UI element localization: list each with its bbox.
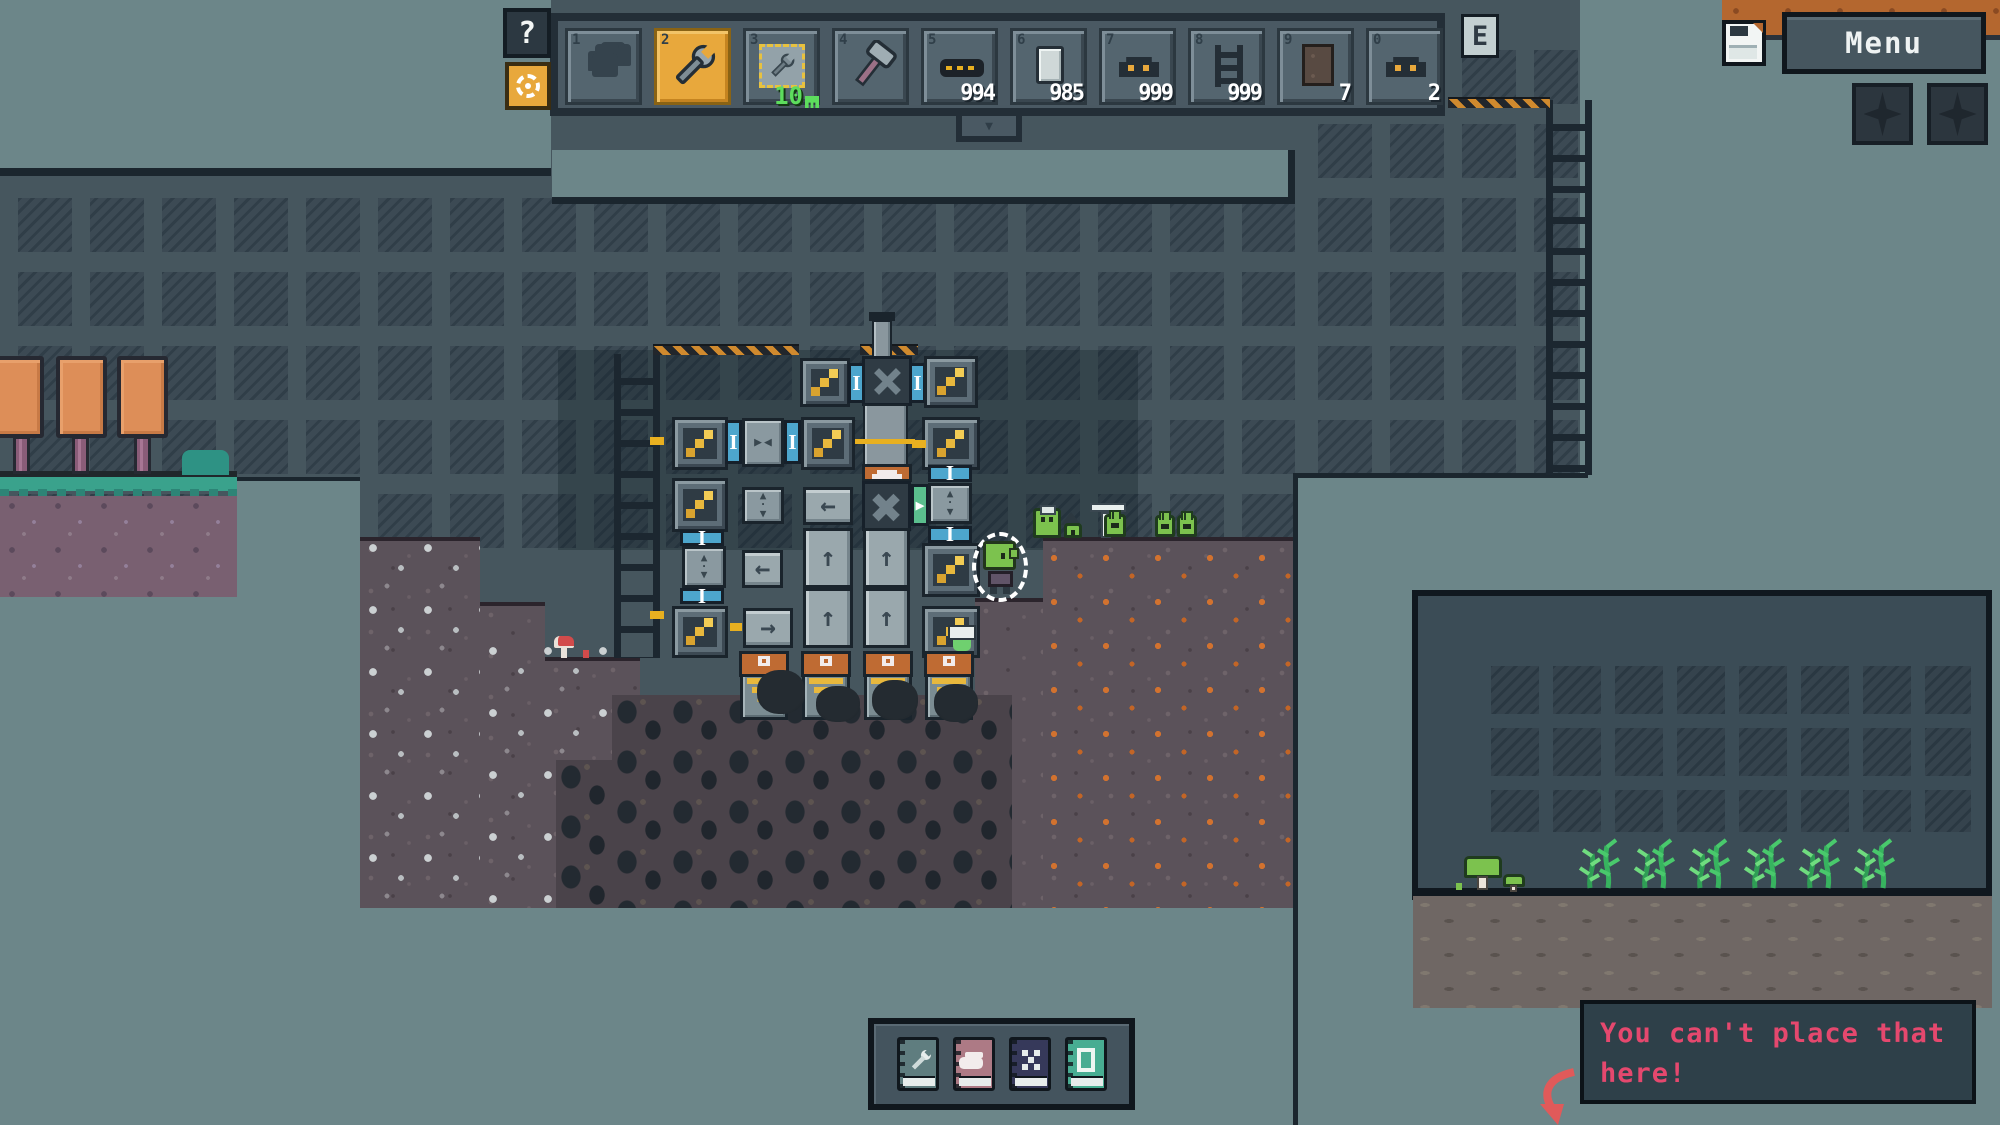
toast-message: You can't place that here!: [1580, 1000, 1976, 1104]
coal-boulder: [934, 684, 978, 722]
pipe[interactable]: [872, 320, 892, 360]
fern-plant: [1578, 834, 1624, 894]
tree-canopy: [56, 356, 107, 438]
storage-crate[interactable]: [672, 478, 728, 532]
sorter-block[interactable]: ▲·▼: [928, 483, 972, 524]
frame-book-icon: [1077, 1048, 1095, 1072]
storage-crate[interactable]: [924, 356, 978, 408]
blueprint-creature-icon: [805, 96, 819, 108]
power-wire: [650, 437, 664, 445]
menu-button[interactable]: Menu: [1782, 12, 1986, 74]
settings-button[interactable]: [505, 62, 551, 110]
red-mushroom-stem: [561, 648, 567, 658]
player-foot: [990, 587, 997, 594]
tree-trunk: [134, 436, 151, 474]
output-port-green[interactable]: ▶: [911, 484, 929, 526]
player-body: [988, 571, 1013, 587]
green-mushroom-trunk: [1510, 885, 1517, 892]
coal-ore-field: [612, 695, 1012, 908]
smelter[interactable]: [862, 481, 911, 531]
green-creature[interactable]: [1177, 515, 1197, 537]
tree-trunk: [72, 436, 89, 474]
power-wire: [650, 611, 664, 619]
miner-item-icon: [1119, 57, 1159, 77]
furnace-book-icon: [965, 1052, 983, 1058]
hotbar-slot-hand[interactable]: 1: [565, 28, 642, 105]
game-screen: I I I ▶◀ I ▲·▼ ← ▶ I ▲·▼ I I ▲·▼ ← ↑ ↑ I…: [0, 0, 2000, 1125]
toast-line-2: here!: [1600, 1054, 1956, 1094]
silver-ore-field: [360, 537, 480, 908]
open-area-bottom-left: [0, 597, 360, 1125]
help-button[interactable]: ?: [503, 8, 551, 58]
open-area-bottom-center: [360, 908, 1293, 1125]
book-frames-guide[interactable]: [1065, 1037, 1107, 1091]
hotbar-slot-blueprint[interactable]: 3 10: [743, 28, 820, 105]
coal-ore-field: [556, 760, 614, 908]
purple-dirt: [0, 496, 237, 597]
conveyor-up[interactable]: ↑: [863, 588, 910, 648]
hotbar-slot-plate[interactable]: 6 985: [1010, 28, 1087, 105]
sorter-block[interactable]: ▲·▼: [682, 546, 726, 588]
tree-canopy: [117, 356, 168, 438]
conveyor-right[interactable]: →: [743, 608, 793, 648]
storage-crate[interactable]: [672, 417, 728, 470]
achievement-button[interactable]: [1927, 83, 1988, 145]
hotbar-expand-tab[interactable]: ▼: [956, 116, 1022, 142]
green-liquid: [953, 640, 971, 651]
storage-crate[interactable]: [801, 417, 855, 470]
coal-boulder: [872, 680, 918, 720]
hotbar-slot-machine[interactable]: 0 2: [1366, 28, 1443, 105]
io-port-blue[interactable]: I: [928, 465, 972, 482]
red-mushroom: [554, 636, 574, 648]
sky-top-left: [0, 0, 551, 176]
fern-plant: [1688, 834, 1734, 894]
light-band-under-hotbar: [552, 150, 1295, 204]
hotbar-slot-ladder[interactable]: 8 999: [1188, 28, 1265, 105]
machine-item-icon: [1386, 57, 1426, 77]
fern-plant: [1853, 834, 1899, 894]
vent-fan[interactable]: [862, 356, 912, 406]
io-port-blue[interactable]: I: [928, 526, 972, 543]
gear-icon: [516, 74, 540, 98]
teal-bush: [182, 450, 229, 475]
green-creature[interactable]: [1104, 514, 1126, 537]
hotbar-slot-panel[interactable]: 9 7: [1277, 28, 1354, 105]
metal-plate-icon: [1036, 46, 1064, 84]
player-head: [983, 541, 1016, 570]
brown-dirt: [1413, 896, 1992, 1008]
coal-boulder: [816, 686, 860, 722]
storage-crate[interactable]: [800, 358, 850, 407]
hotbar-slot-wrench[interactable]: 2: [654, 28, 731, 105]
hotbar-hotkey-badge: E: [1461, 14, 1499, 58]
hotbar-slot-miner[interactable]: 7 999: [1099, 28, 1176, 105]
hotbar-slot-conveyor[interactable]: 5 994: [921, 28, 998, 105]
io-port-blue[interactable]: I: [680, 588, 724, 604]
toast-line-1: You can't place that: [1600, 1014, 1956, 1054]
conveyor-up[interactable]: ↑: [803, 528, 853, 588]
player-foot: [1003, 587, 1010, 594]
hand-icon: [592, 53, 618, 77]
storage-crate[interactable]: [672, 606, 728, 658]
right-room-tiles: [1477, 652, 1971, 832]
conveyor-item-icon: [940, 59, 984, 77]
copper-ore-field: [1043, 545, 1293, 908]
tree-canopy: [0, 356, 44, 438]
power-wire: [912, 440, 926, 448]
power-wire: [855, 439, 915, 444]
achievement-button[interactable]: [1852, 83, 1913, 145]
book-tech-guide[interactable]: [1009, 1037, 1051, 1091]
green-creature[interactable]: [1155, 515, 1175, 537]
pixel-grid-book-icon: [1022, 1050, 1028, 1056]
fern-plant: [1798, 834, 1844, 894]
book-smelting-guide[interactable]: [953, 1037, 995, 1091]
green-mushroom-trunk: [1477, 876, 1488, 890]
hopper: [948, 625, 976, 640]
io-port-blue[interactable]: I: [784, 420, 801, 464]
fern-plant: [1743, 834, 1789, 894]
green-mushroom-tree: [1464, 856, 1502, 878]
pipe-vertical[interactable]: [863, 404, 908, 466]
hammer-icon: [847, 40, 899, 96]
small-creature[interactable]: [1064, 523, 1082, 538]
conveyor-up[interactable]: ↑: [863, 528, 910, 588]
blueprint-count: 10: [774, 82, 803, 110]
valve-block[interactable]: ▶◀: [742, 418, 784, 467]
toast-arrow-icon: [1528, 1066, 1600, 1125]
hazard-strip: [653, 344, 799, 355]
fern-plant: [1633, 834, 1679, 894]
coal-boulder: [757, 670, 805, 714]
book-build-guide[interactable]: [897, 1037, 939, 1091]
star-icon: [1939, 92, 1977, 136]
power-wire: [730, 623, 742, 631]
plant-creature[interactable]: [1033, 508, 1061, 538]
player-character[interactable]: [974, 534, 1026, 600]
splitter-block[interactable]: ▲·▼: [742, 487, 784, 524]
hotbar-slot-hammer[interactable]: 4: [832, 28, 909, 105]
furnace-top[interactable]: [862, 464, 912, 482]
conveyor-up[interactable]: ↑: [803, 588, 853, 648]
io-port-blue[interactable]: I: [725, 420, 742, 464]
star-icon: [1864, 92, 1902, 136]
conveyor-left[interactable]: ←: [742, 550, 783, 588]
hazard-strip: [1448, 97, 1550, 108]
io-port-blue[interactable]: I: [680, 530, 724, 546]
wall-panel-icon: [1302, 44, 1334, 86]
green-sprout: [1456, 883, 1462, 890]
tree-trunk: [13, 436, 30, 474]
codex-panel: [868, 1018, 1135, 1110]
red-sprout: [583, 650, 589, 658]
save-floppy-icon[interactable]: [1722, 20, 1766, 66]
conveyor-left[interactable]: ←: [803, 487, 853, 525]
ladder[interactable]: [1546, 100, 1592, 475]
wrench-icon: [669, 41, 719, 95]
